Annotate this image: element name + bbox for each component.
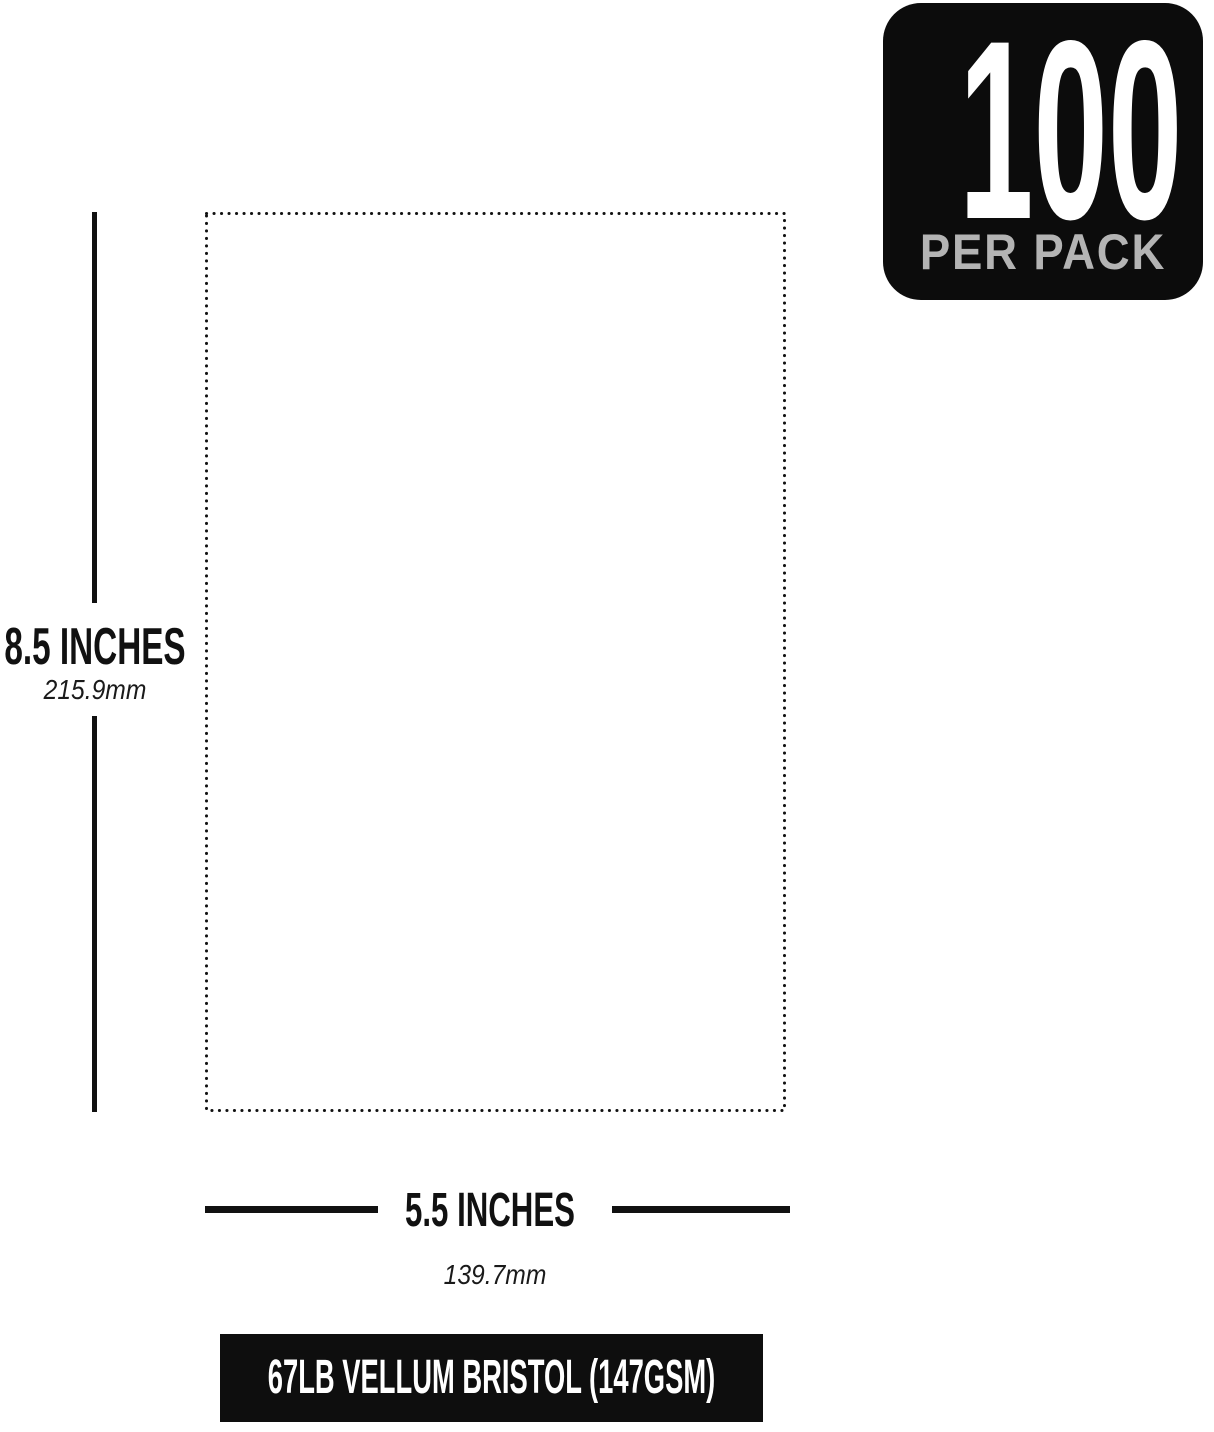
sheet-dotted-outline <box>207 214 785 1111</box>
pack-count: 100 <box>959 3 1127 258</box>
paper-spec-label: 67LB VELLUM BRISTOL (147GSM) <box>268 1354 715 1402</box>
width-inches-label: 5.5 INCHES <box>393 1187 588 1235</box>
height-inches-label: 8.5 INCHES <box>0 621 191 673</box>
product-dimension-diagram: 100 PER PACK 8.5 INCHES 215.9mm 5.5 INCH… <box>0 0 1214 1432</box>
pack-count-label: PER PACK <box>897 227 1188 277</box>
height-metric-label: 215.9mm <box>0 676 227 704</box>
paper-spec-bar: 67LB VELLUM BRISTOL (147GSM) <box>220 1334 763 1422</box>
per-pack-badge: 100 PER PACK <box>883 3 1203 300</box>
width-metric-label: 139.7mm <box>363 1261 627 1289</box>
